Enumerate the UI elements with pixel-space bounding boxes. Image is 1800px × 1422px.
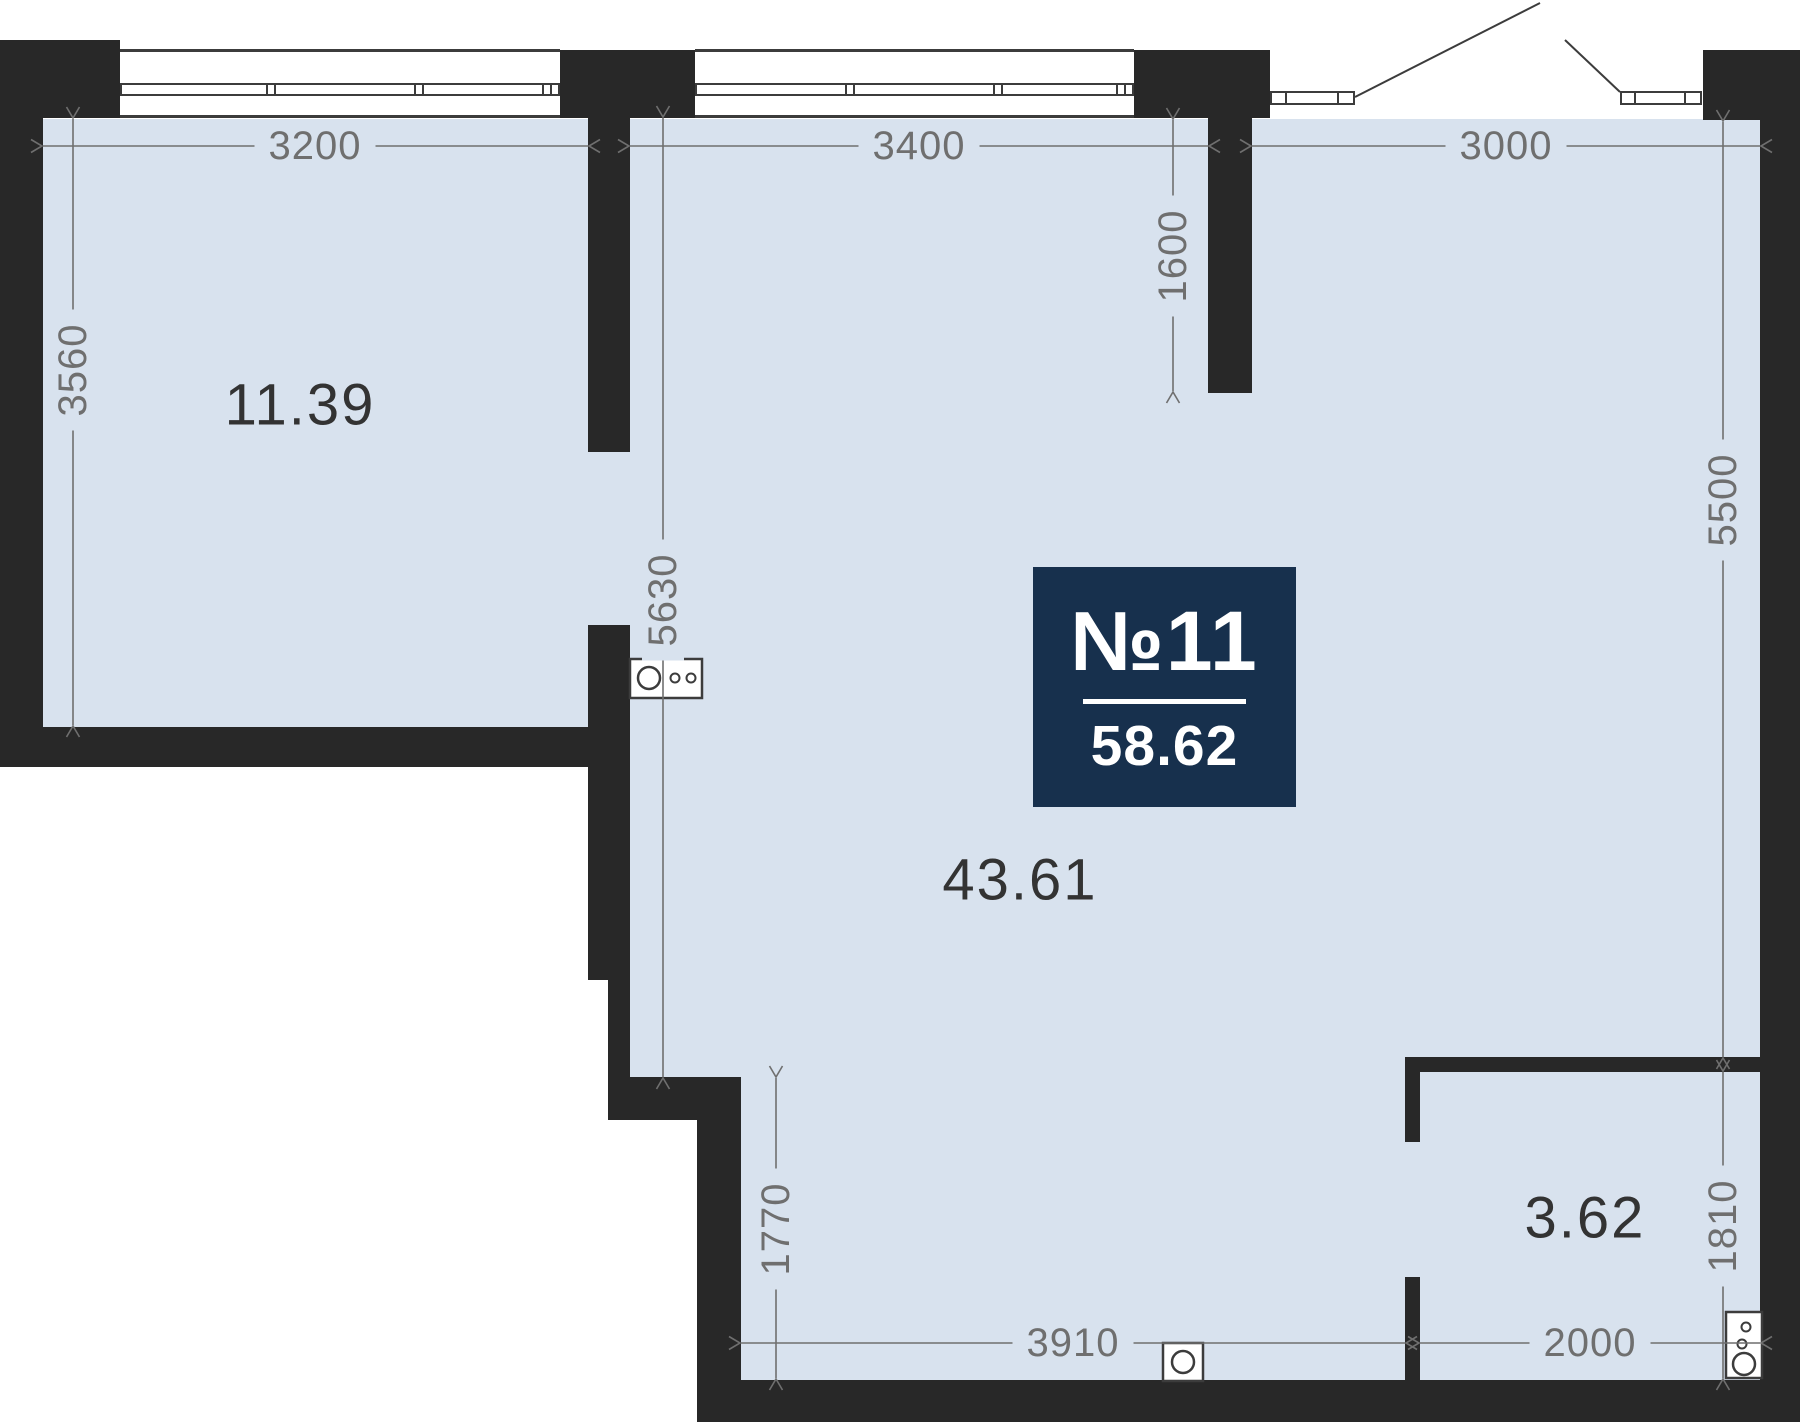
dim-bottom-right-width: 2000: [1530, 1322, 1651, 1364]
dim-bottom-center-width: 3910: [1013, 1322, 1134, 1364]
plumbing-riser-icon: [1163, 1343, 1203, 1381]
dim-top-center-width: 3400: [859, 125, 980, 167]
dimension-lines: [43, 118, 1760, 1378]
floor-plan: 3200 3400 3000 3560 5630 1600 5500 1770 …: [0, 0, 1800, 1422]
badge-divider: [1083, 699, 1246, 704]
room-area-top-left: 11.39: [225, 372, 376, 439]
dim-bottom-left-height: 1770: [755, 1169, 797, 1290]
dim-top-right-width: 3000: [1446, 125, 1567, 167]
dim-right-height: 5500: [1702, 440, 1744, 561]
unit-badge: №11 58.62: [1033, 567, 1296, 807]
dim-entry-stub-height: 1600: [1152, 196, 1194, 317]
unit-total-area: 58.62: [1091, 718, 1239, 775]
dim-center-height: 5630: [642, 540, 684, 661]
dim-left-height: 3560: [52, 310, 94, 431]
unit-number: №11: [1070, 599, 1258, 683]
dim-top-left-width: 3200: [255, 125, 376, 167]
room-area-main: 43.61: [942, 847, 1097, 914]
room-area-bottom-right: 3.62: [1525, 1185, 1646, 1252]
utility-shaft-icon: [1726, 1312, 1762, 1378]
door-swing-icon: [1355, 3, 1620, 97]
electrical-panel-icon: [630, 659, 702, 698]
dim-right-bottom-height: 1810: [1702, 1166, 1744, 1287]
